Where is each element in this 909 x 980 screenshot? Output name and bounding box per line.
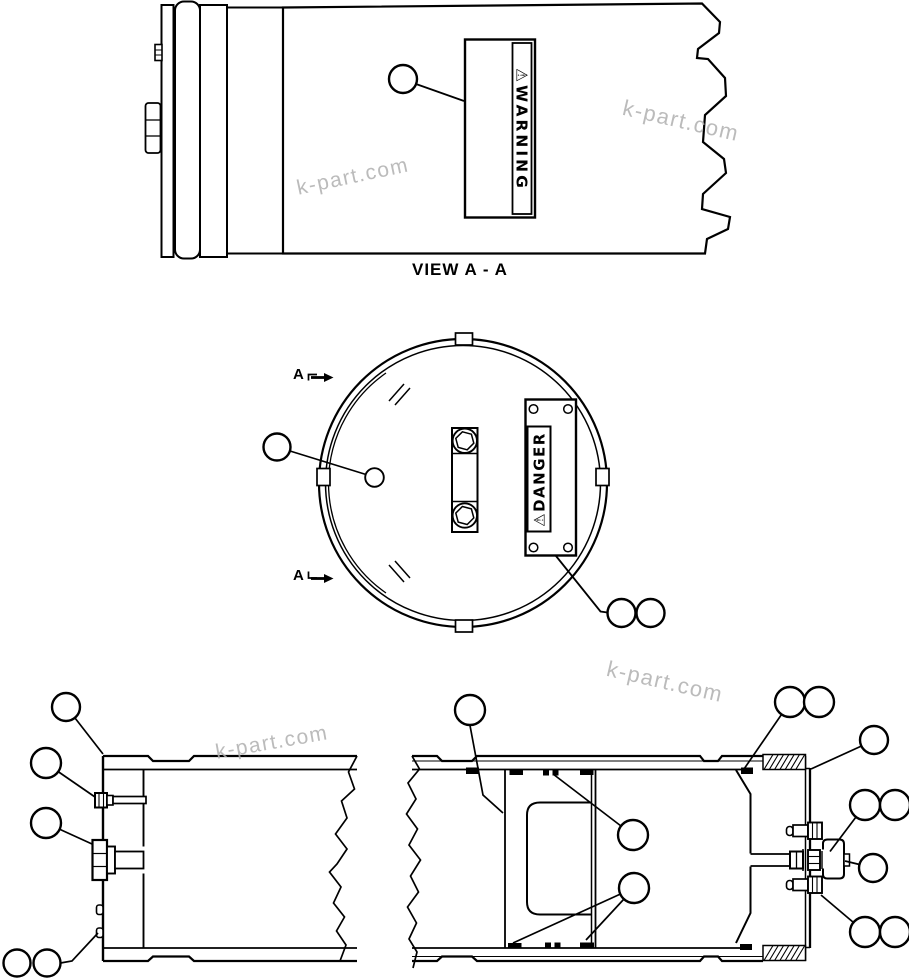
cylinder-band xyxy=(162,5,174,257)
rim-notch-left xyxy=(317,469,330,486)
callout-balloon-13[interactable] xyxy=(775,687,805,717)
left-fitting-nut xyxy=(93,840,144,880)
rim-notch-top xyxy=(456,333,473,345)
body-bottom-edge xyxy=(103,957,763,962)
access-panel-opening xyxy=(527,803,592,915)
parts-diagram-page: VIEW A - A ⚠WARNING ⚠DANGER A A k-part.c… xyxy=(0,0,909,980)
cylinder-band xyxy=(175,2,200,259)
mounting-bracket xyxy=(823,840,844,879)
callout-balloon-3[interactable] xyxy=(608,599,636,627)
hex-nut xyxy=(808,850,820,870)
warning-label: ⚠WARNING xyxy=(514,45,531,215)
left-edge-stud xyxy=(97,905,104,915)
callout-balloon-2[interactable] xyxy=(264,434,291,461)
section-arrow-bottom xyxy=(309,572,334,584)
plug-detail-circle xyxy=(365,468,384,487)
section-marker-a-bottom: A xyxy=(293,567,304,584)
section-arrow-top xyxy=(309,373,334,382)
callout-balloon-16[interactable] xyxy=(850,790,880,820)
callout-balloon-15[interactable] xyxy=(860,726,888,754)
section-marker-a-top: A xyxy=(293,366,304,383)
connector-fitting xyxy=(146,103,161,153)
rim-notch-right xyxy=(596,469,609,486)
left-port-bolt xyxy=(95,793,146,808)
thread-hatch-top xyxy=(763,755,806,770)
break-line-left xyxy=(330,756,358,961)
callout-balloon-9[interactable] xyxy=(34,950,61,977)
callout-balloon-6[interactable] xyxy=(31,748,61,778)
callout-balloon-20[interactable] xyxy=(880,917,909,947)
cylinder-band xyxy=(227,8,283,254)
right-stud-bolt-bottom xyxy=(787,877,823,894)
callout-balloon-19[interactable] xyxy=(850,917,880,947)
callout-balloon-17[interactable] xyxy=(880,790,909,820)
break-line-right xyxy=(407,756,421,968)
end-view-drawing xyxy=(264,333,665,632)
section-view-drawing xyxy=(4,687,909,977)
callout-balloon-10[interactable] xyxy=(455,695,485,725)
small-tab-fitting xyxy=(155,45,162,61)
danger-label: ⚠DANGER xyxy=(531,428,548,532)
callout-balloon-14[interactable] xyxy=(804,687,834,717)
callout-balloon-12[interactable] xyxy=(619,873,649,903)
leader-lines xyxy=(58,715,862,964)
right-stud-bolt-top xyxy=(787,823,823,840)
callout-balloon-4[interactable] xyxy=(637,599,665,627)
callout-balloon-5[interactable] xyxy=(52,693,80,721)
view-caption: VIEW A - A xyxy=(412,260,508,280)
callout-balloon-11[interactable] xyxy=(618,820,648,850)
right-inner-wall xyxy=(736,770,751,943)
callout-balloon-7[interactable] xyxy=(31,808,61,838)
panel-clips xyxy=(466,768,753,951)
top-view-drawing xyxy=(146,2,731,259)
thread-hatch-bottom xyxy=(763,946,806,961)
callout-balloon-1[interactable] xyxy=(389,65,417,93)
callout-balloon-8[interactable] xyxy=(4,950,31,977)
rim-detail-arc xyxy=(329,373,386,593)
rod-tip xyxy=(844,854,850,866)
rim-notch-bottom xyxy=(456,620,473,632)
diagram-lineart xyxy=(0,0,909,980)
callout-balloon-18[interactable] xyxy=(859,854,887,882)
arc-end-ticks xyxy=(389,384,410,582)
center-bolt-bracket xyxy=(452,428,478,532)
cylinder-band xyxy=(200,5,227,257)
